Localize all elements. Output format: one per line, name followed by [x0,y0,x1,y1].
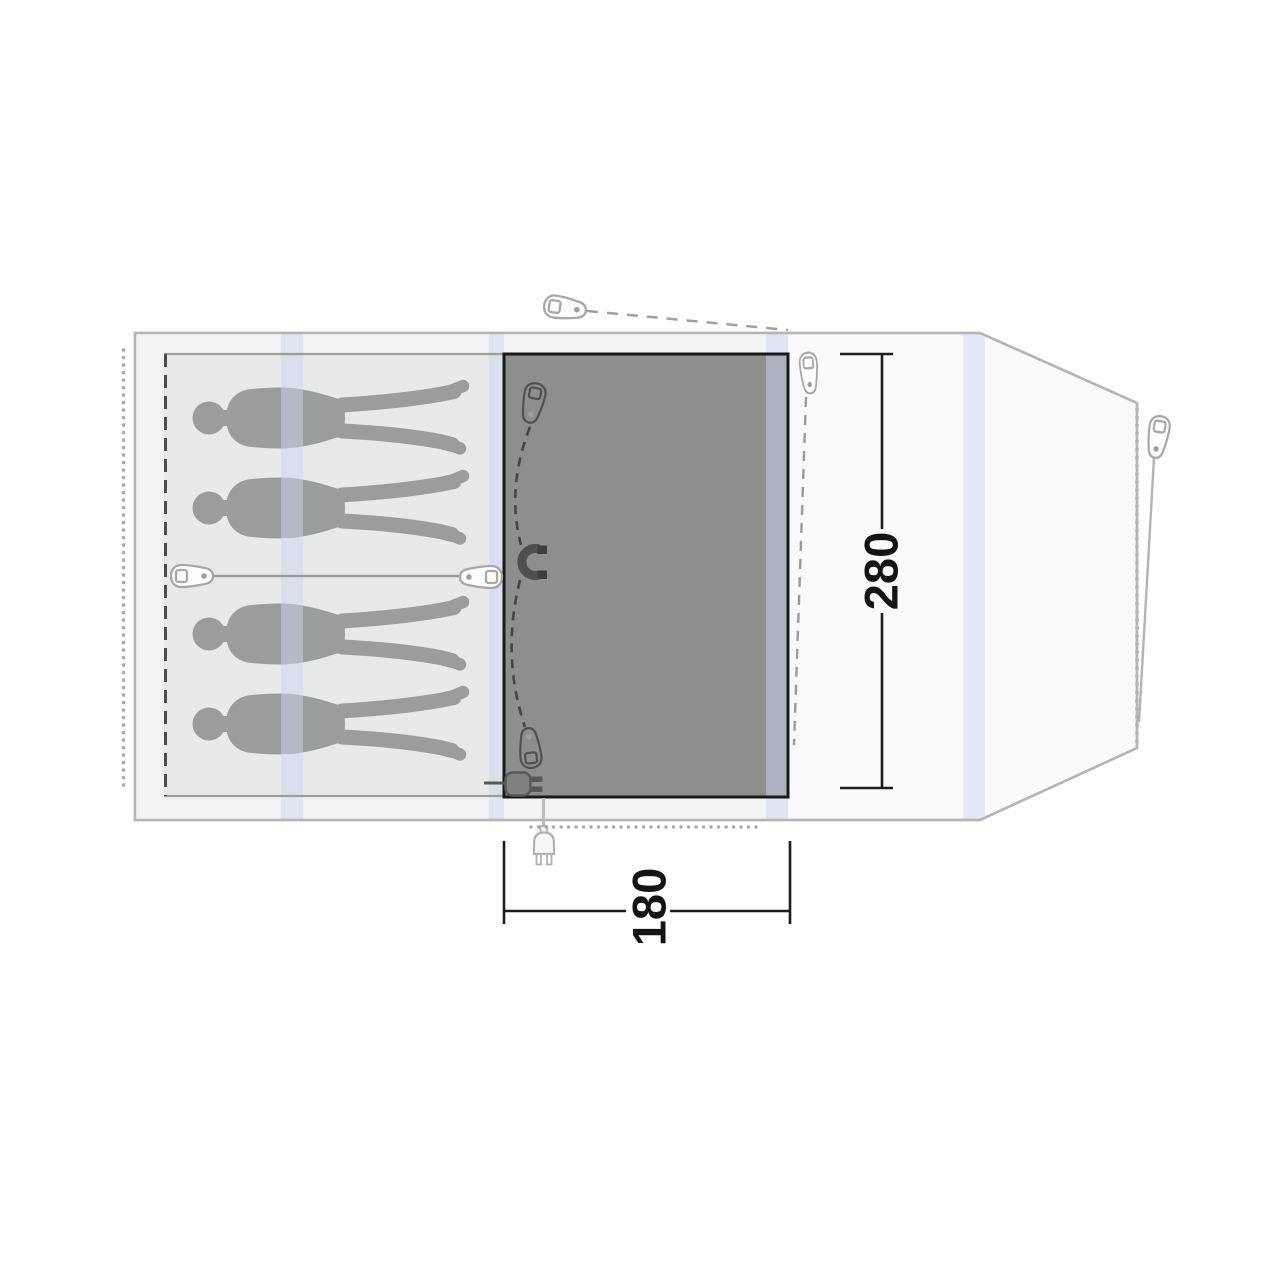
strap-buckle-right-icon [460,566,502,588]
guyline-peg-top-icon [543,294,588,322]
dimension-180-label: 180 [623,868,676,946]
strap-buckle-left-icon [171,565,213,587]
pole-band-3 [766,334,788,819]
power-plug-outside-icon [534,826,554,865]
pole-band-4 [963,334,985,819]
guyline-top-rope [587,311,788,330]
guyline-top [543,294,788,330]
guyline-peg-right-icon [1145,415,1172,460]
tent-floorplan-diagram: 280 180 [0,0,1280,1280]
guyline-right [1139,415,1171,722]
guyline-right-rope [1139,458,1154,722]
dimension-280-label: 280 [855,532,908,610]
